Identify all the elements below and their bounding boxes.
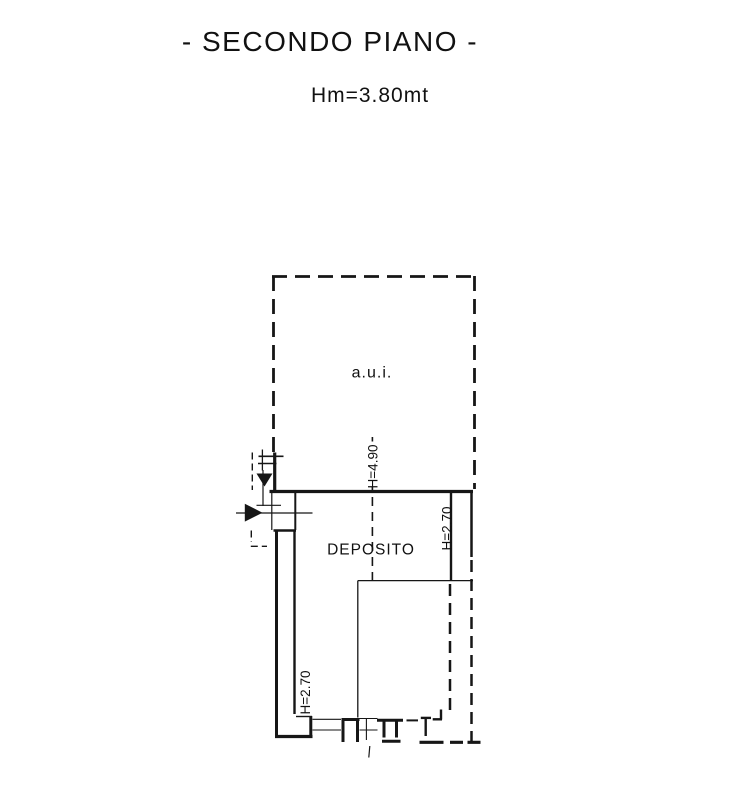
bottom-wall-openings bbox=[313, 710, 443, 758]
height-label-h490: H=4.90 bbox=[366, 445, 381, 489]
entrance-arrow-icon bbox=[245, 504, 263, 522]
plan-labels: a.u.i. DEPOSITO H=4.90 H=2.70 H=2.70 bbox=[298, 365, 455, 715]
room-label-deposito: DEPOSITO bbox=[327, 542, 415, 559]
height-label-h270-left: H=2.70 bbox=[298, 671, 313, 715]
room-label-aui: a.u.i. bbox=[352, 365, 393, 382]
stair-down-arrow-icon bbox=[257, 474, 273, 487]
floorplan-page: - SECONDO PIANO - Hm=3.80mt bbox=[0, 0, 741, 800]
center-bottom-tick bbox=[369, 746, 370, 758]
right-dashed-boundary bbox=[450, 560, 472, 741]
stair-symbol bbox=[257, 450, 284, 507]
interior-thin-lines bbox=[236, 491, 473, 718]
height-label-h270-right: H=2.70 bbox=[440, 507, 455, 551]
floor-plan-drawing: a.u.i. DEPOSITO H=4.90 H=2.70 H=2.70 bbox=[0, 0, 741, 800]
landing-dashed-lines bbox=[251, 453, 267, 547]
